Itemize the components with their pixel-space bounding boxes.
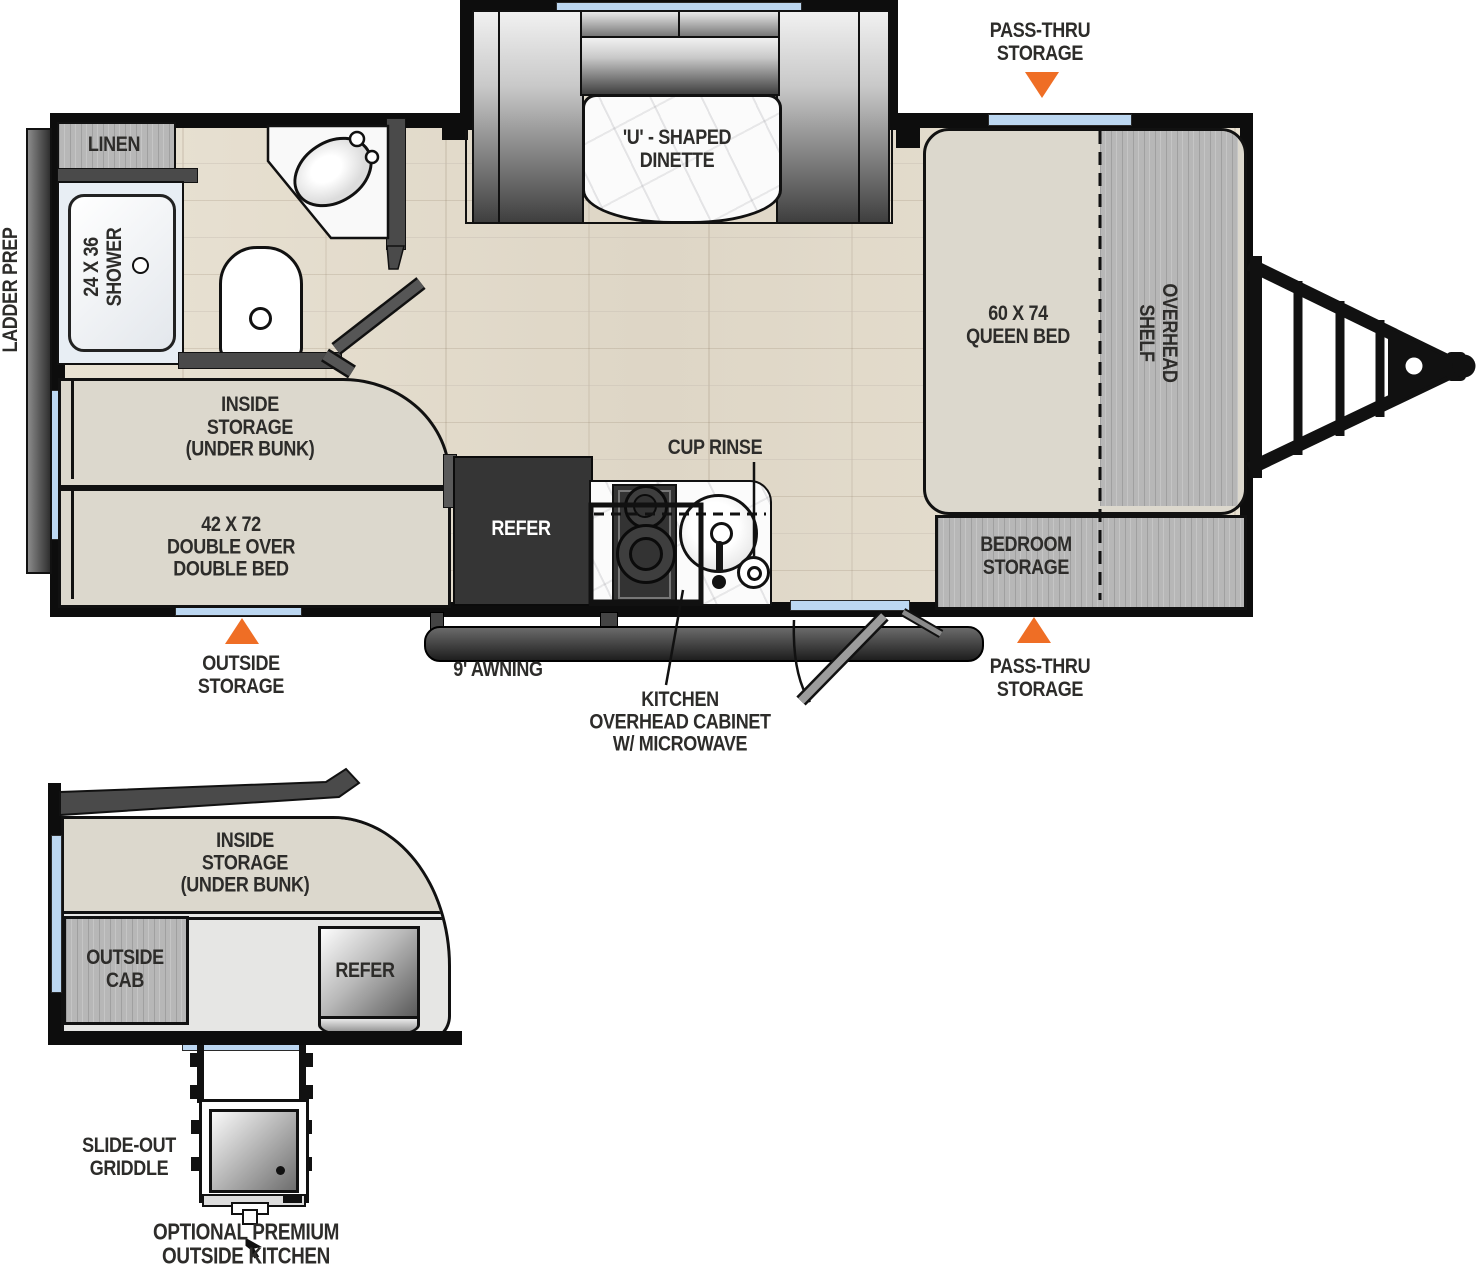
griddle-tray-end — [283, 1194, 302, 1203]
rail-tab — [305, 1053, 313, 1067]
shower-label: 24 X 36 SHOWER — [81, 228, 125, 307]
ladder-prep-bar — [26, 128, 52, 574]
bunk-head-line-1 — [71, 381, 74, 479]
awning-bar — [424, 626, 984, 662]
ladder-prep-label: LADDER PREP — [0, 227, 22, 352]
pass-thru-top-label: PASS-THRU STORAGE — [990, 20, 1090, 64]
optional-premium-label: OPTIONAL PREMIUM OUTSIDE KITCHEN — [153, 1221, 339, 1269]
wall-step-right — [896, 126, 920, 148]
inside-storage-label: INSIDE STORAGE (UNDER BUNK) — [186, 394, 315, 460]
ok-bunk-edge-bar — [60, 769, 359, 815]
refer-label: REFER — [491, 518, 550, 540]
overhead-shelf-label: OVERHEAD SHELF — [1136, 283, 1180, 382]
front-passthru-window — [988, 114, 1132, 126]
ok-bottom-wall — [48, 1031, 462, 1045]
pass-thru-bottom-label: PASS-THRU STORAGE — [990, 656, 1090, 700]
linen-label: LINEN — [88, 134, 140, 156]
dinette-bench-right-arm — [858, 10, 890, 224]
cup-rinse-drain — [747, 566, 762, 581]
wall-step-left — [442, 126, 468, 140]
shower-drain — [132, 257, 149, 274]
toilet-flush — [249, 307, 272, 330]
slide-out-griddle-label: SLIDE-OUT GRIDDLE — [82, 1135, 176, 1179]
entry-door-opening — [790, 600, 910, 611]
awning-label: 9' AWNING — [453, 659, 542, 681]
rail-tab — [191, 1120, 199, 1134]
cup-rinse-label: CUP RINSE — [668, 437, 762, 459]
pass-thru-top-arrow-icon — [1025, 72, 1059, 98]
bath-bunk-wall — [178, 352, 342, 369]
griddle-rail-left — [197, 1045, 204, 1103]
double-bed-label: 42 X 72 DOUBLE OVER DOUBLE BED — [167, 514, 295, 580]
ok-inside-storage-label: INSIDE STORAGE (UNDER BUNK) — [181, 830, 310, 896]
bunk-head-line-2 — [71, 491, 74, 599]
rv-floorplan-diagram: LADDER PREP LINEN 24 X 36 SHOWER INSIDE … — [0, 0, 1477, 1270]
ok-side-window — [51, 835, 62, 993]
burner-small-inner — [633, 494, 657, 518]
rail-tab — [305, 1085, 313, 1099]
kitchen-overhead-label: KITCHEN OVERHEAD CABINET W/ MICROWAVE — [589, 689, 770, 755]
dinette-bench-left — [498, 10, 584, 224]
trailer-tongue — [1249, 256, 1476, 478]
bedroom-storage-label: BEDROOM STORAGE — [980, 534, 1071, 578]
griddle-surface — [209, 1109, 299, 1193]
dinette-bench-right — [776, 10, 862, 224]
dinette-bench-top — [580, 36, 780, 96]
griddle-knob — [276, 1166, 285, 1175]
outside-cab-label: OUTSIDE CAB — [86, 947, 163, 991]
burner-large-inner — [629, 537, 663, 571]
toilet — [219, 246, 303, 360]
pass-thru-bottom-arrow-icon — [1017, 617, 1051, 643]
rail-tab — [191, 1157, 199, 1171]
faucet-stem — [716, 541, 723, 573]
bath-partition-wall — [386, 118, 406, 250]
dinette-label: 'U' - SHAPED DINETTE — [623, 127, 731, 171]
queen-bed-label: 60 X 74 QUEEN BED — [966, 303, 1070, 347]
ok-refer-label: REFER — [335, 960, 394, 982]
outside-storage-label: OUTSIDE STORAGE — [198, 653, 284, 697]
faucet-knob — [712, 575, 726, 589]
outside-storage-arrow-icon — [225, 618, 259, 644]
rail-tab — [190, 1085, 198, 1099]
rail-tab — [190, 1053, 198, 1067]
